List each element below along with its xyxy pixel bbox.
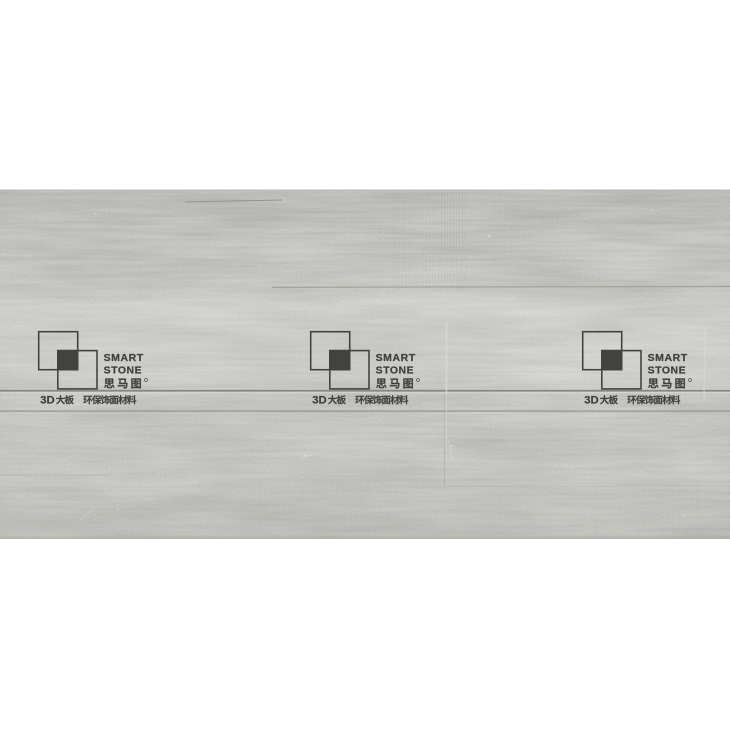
svg-text:STONE: STONE bbox=[376, 365, 414, 377]
svg-text:3D: 3D bbox=[40, 394, 54, 406]
svg-text:3D: 3D bbox=[312, 394, 326, 406]
svg-text:3D: 3D bbox=[584, 394, 598, 406]
svg-text:STONE: STONE bbox=[648, 365, 686, 377]
svg-text:SMART: SMART bbox=[376, 352, 416, 364]
svg-text:SMART: SMART bbox=[648, 352, 688, 364]
svg-text:STONE: STONE bbox=[104, 365, 142, 377]
svg-text:SMART: SMART bbox=[104, 352, 144, 364]
